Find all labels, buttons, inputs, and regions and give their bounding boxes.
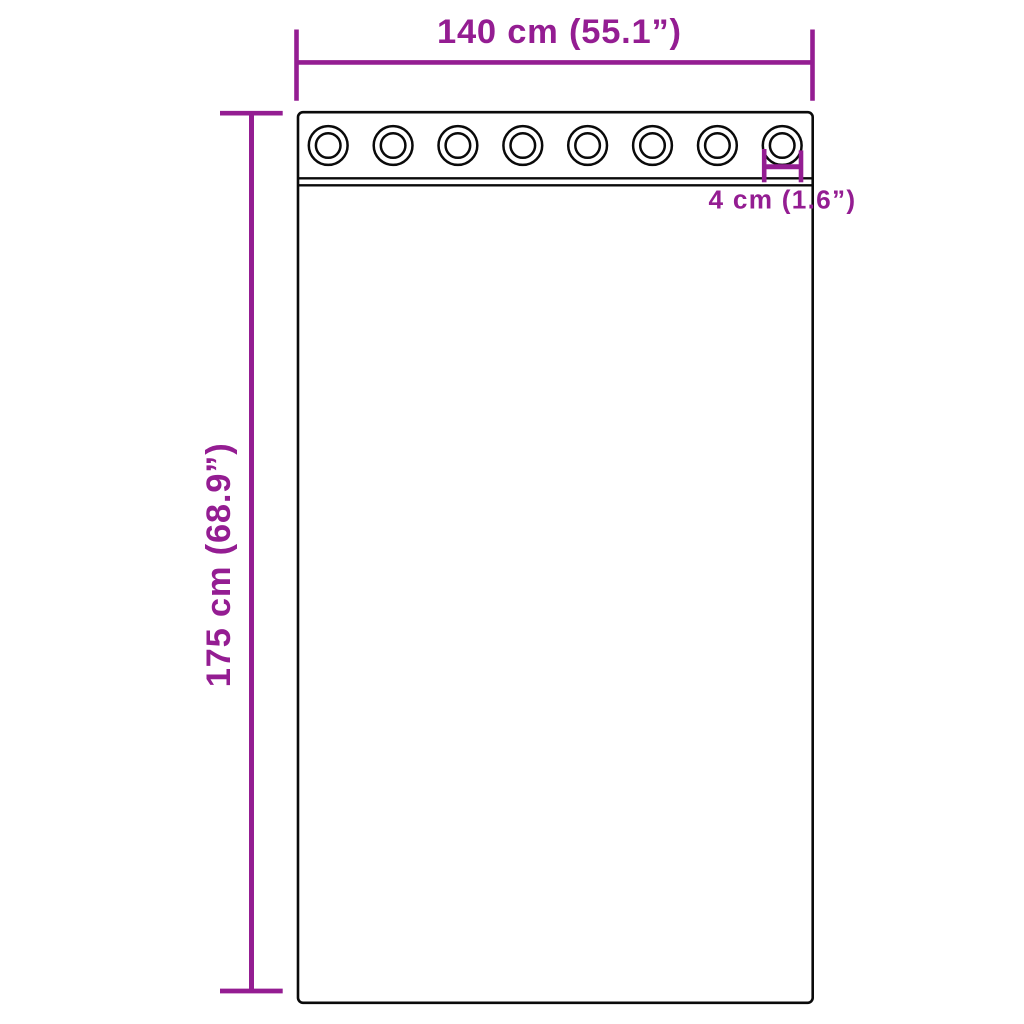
svg-text:140 cm (55.1”): 140 cm (55.1”) <box>437 13 681 51</box>
svg-text:175 cm (68.9”): 175 cm (68.9”) <box>200 443 238 687</box>
svg-text:4 cm (1.6”): 4 cm (1.6”) <box>709 185 856 215</box>
